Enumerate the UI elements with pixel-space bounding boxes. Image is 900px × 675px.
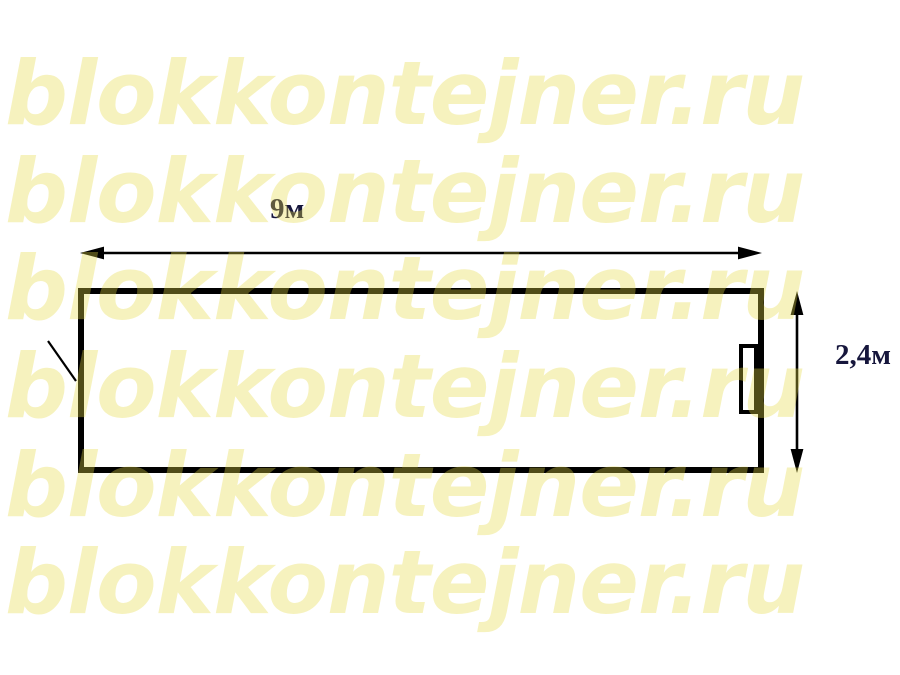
height-arrowhead-bottom	[791, 449, 804, 473]
height-arrowhead-top	[791, 291, 804, 315]
dimension-diagram: 9м 2,4м	[0, 0, 900, 675]
container-rectangle	[81, 291, 761, 470]
width-arrowhead-left	[80, 247, 104, 260]
door-swing-line	[48, 341, 76, 381]
height-dimension-arrow	[791, 291, 804, 473]
door-marker	[741, 346, 756, 412]
width-arrowhead-right	[738, 247, 762, 260]
page-background: 9м 2,4м blokkontejner.ru blokkontejner.r…	[0, 0, 900, 675]
diagram-canvas	[0, 0, 900, 675]
height-label: 2,4м	[835, 341, 891, 370]
width-label: 9м	[270, 195, 304, 224]
width-dimension-arrow	[80, 247, 762, 260]
